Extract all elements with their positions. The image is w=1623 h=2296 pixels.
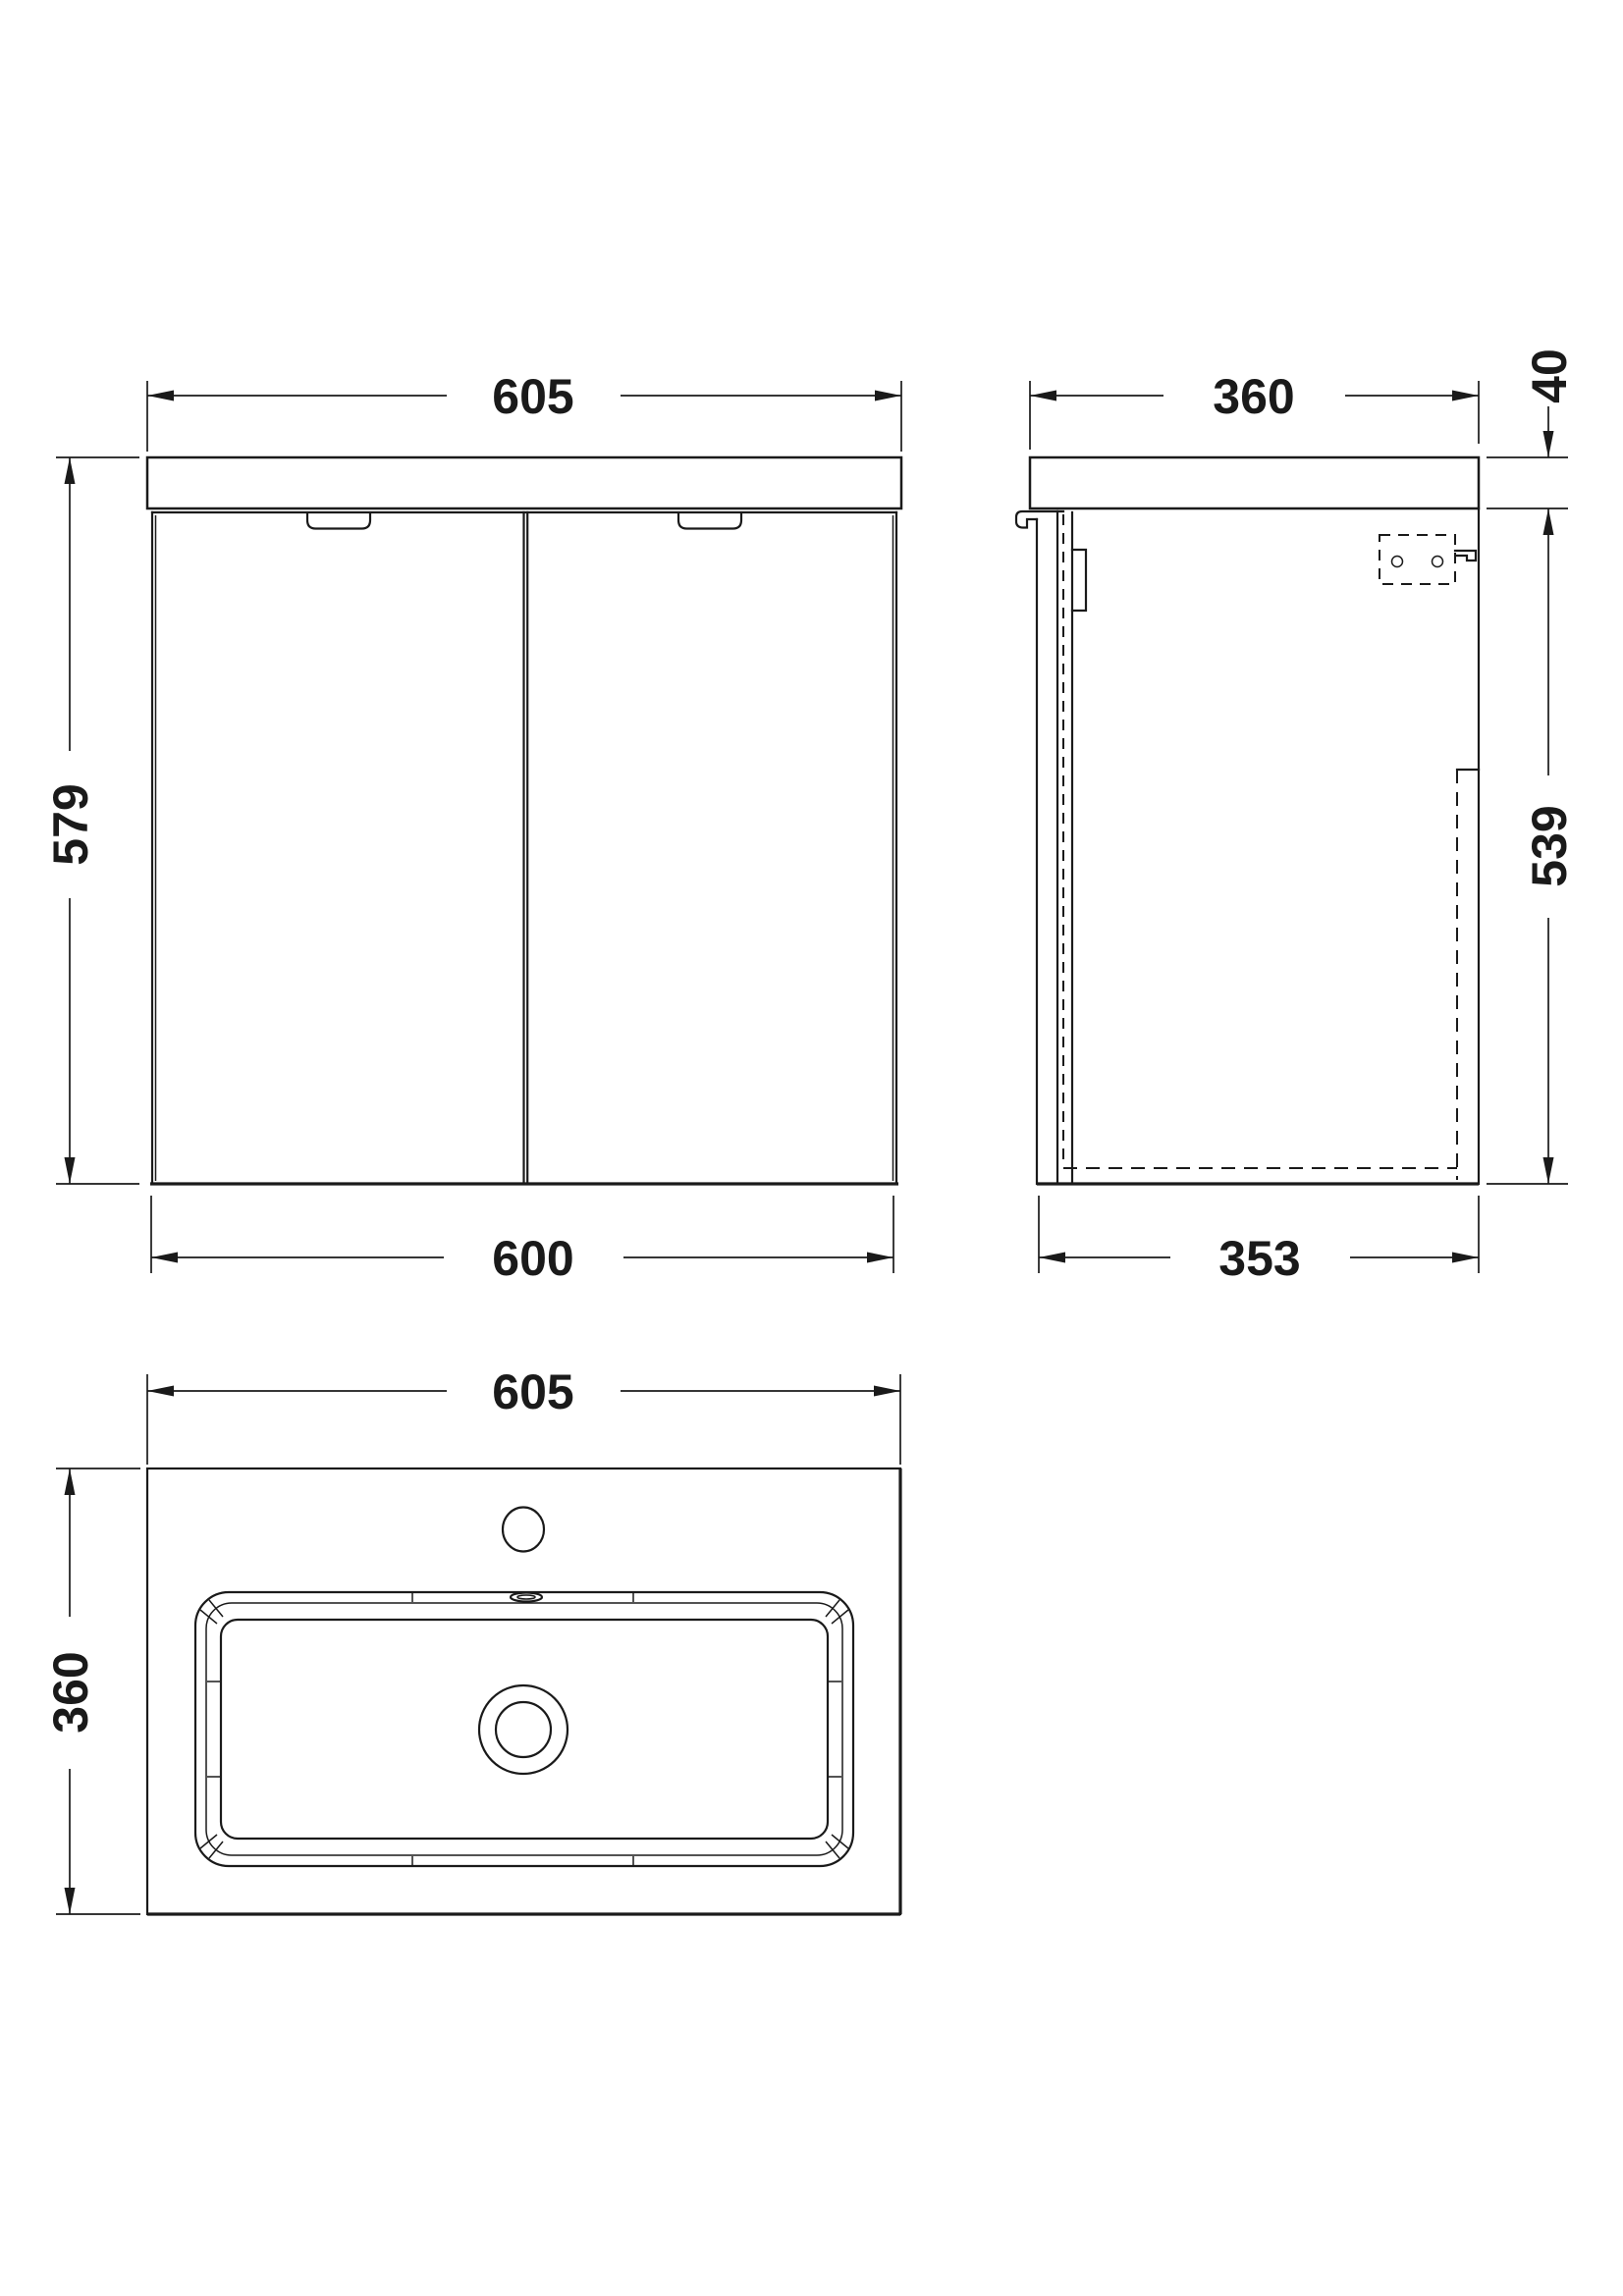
- bracket-screw-hole: [1392, 557, 1403, 567]
- dim-label-front-bottom-width: 600: [492, 1231, 573, 1286]
- plan-view: 605 360: [43, 1364, 900, 1914]
- dim-plan-depth: 360: [43, 1468, 140, 1914]
- vanity-technical-drawing: 605 579 600: [0, 0, 1623, 2296]
- worktop-front: [147, 457, 901, 508]
- dim-plan-width: 605: [147, 1364, 900, 1465]
- door-handle-left: [307, 513, 370, 529]
- bracket-screw-hole: [1433, 557, 1443, 567]
- dim-label-plan-width: 605: [492, 1364, 573, 1419]
- front-view: 605 579 600: [43, 369, 901, 1286]
- dim-front-bottom-width: 600: [151, 1196, 893, 1286]
- hinge-plate: [1072, 550, 1086, 611]
- dim-front-height: 579: [43, 457, 139, 1184]
- tap-hole: [503, 1508, 544, 1552]
- dim-cabinet-height: 539: [1487, 508, 1577, 1184]
- bowl-rim-ticks: [207, 1593, 841, 1866]
- dim-label-side-bottom-depth: 353: [1218, 1231, 1300, 1286]
- overflow-slot: [511, 1593, 542, 1602]
- dim-label-worktop-thickness: 40: [1522, 348, 1577, 403]
- dim-side-bottom-depth: 353: [1039, 1196, 1479, 1286]
- dim-label-cabinet-height: 539: [1522, 805, 1577, 886]
- worktop-side: [1030, 457, 1479, 508]
- basin-bowl: [195, 1592, 853, 1866]
- dim-label-front-width: 605: [492, 369, 573, 424]
- drawing-sheet: 605 579 600: [0, 0, 1623, 2296]
- door-divider: [524, 512, 528, 1183]
- door-handle-right: [678, 513, 741, 529]
- dim-label-plan-depth: 360: [43, 1651, 98, 1733]
- basin-top-outline: [147, 1468, 900, 1914]
- dim-worktop-thickness: 40: [1487, 348, 1577, 508]
- bowl-corner-facets: [200, 1600, 848, 1858]
- dim-label-side-depth: 360: [1213, 369, 1294, 424]
- bracket-body: [1380, 535, 1455, 584]
- bracket-hook: [1455, 551, 1476, 561]
- dim-side-depth: 360: [1030, 369, 1479, 450]
- side-carcass: [1037, 508, 1479, 1184]
- side-door-panel: [1016, 511, 1063, 1184]
- dim-front-top-width: 605: [147, 369, 901, 452]
- wall-bracket: [1380, 535, 1476, 584]
- side-view: 360 40 539 353: [1016, 348, 1577, 1286]
- waste-drain: [479, 1685, 568, 1774]
- dim-label-front-height: 579: [43, 783, 98, 865]
- handle-lip-profile: [1016, 511, 1063, 528]
